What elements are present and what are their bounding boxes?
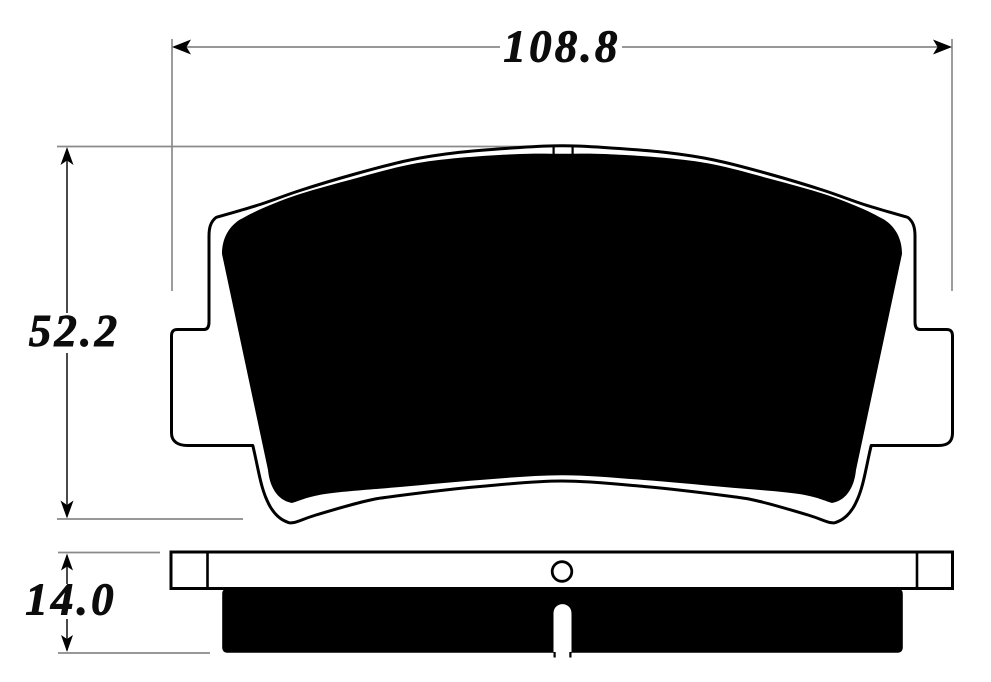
svg-text:108.8: 108.8 <box>503 22 620 72</box>
svg-text:14.0: 14.0 <box>25 575 117 625</box>
svg-text:52.2: 52.2 <box>29 306 121 356</box>
